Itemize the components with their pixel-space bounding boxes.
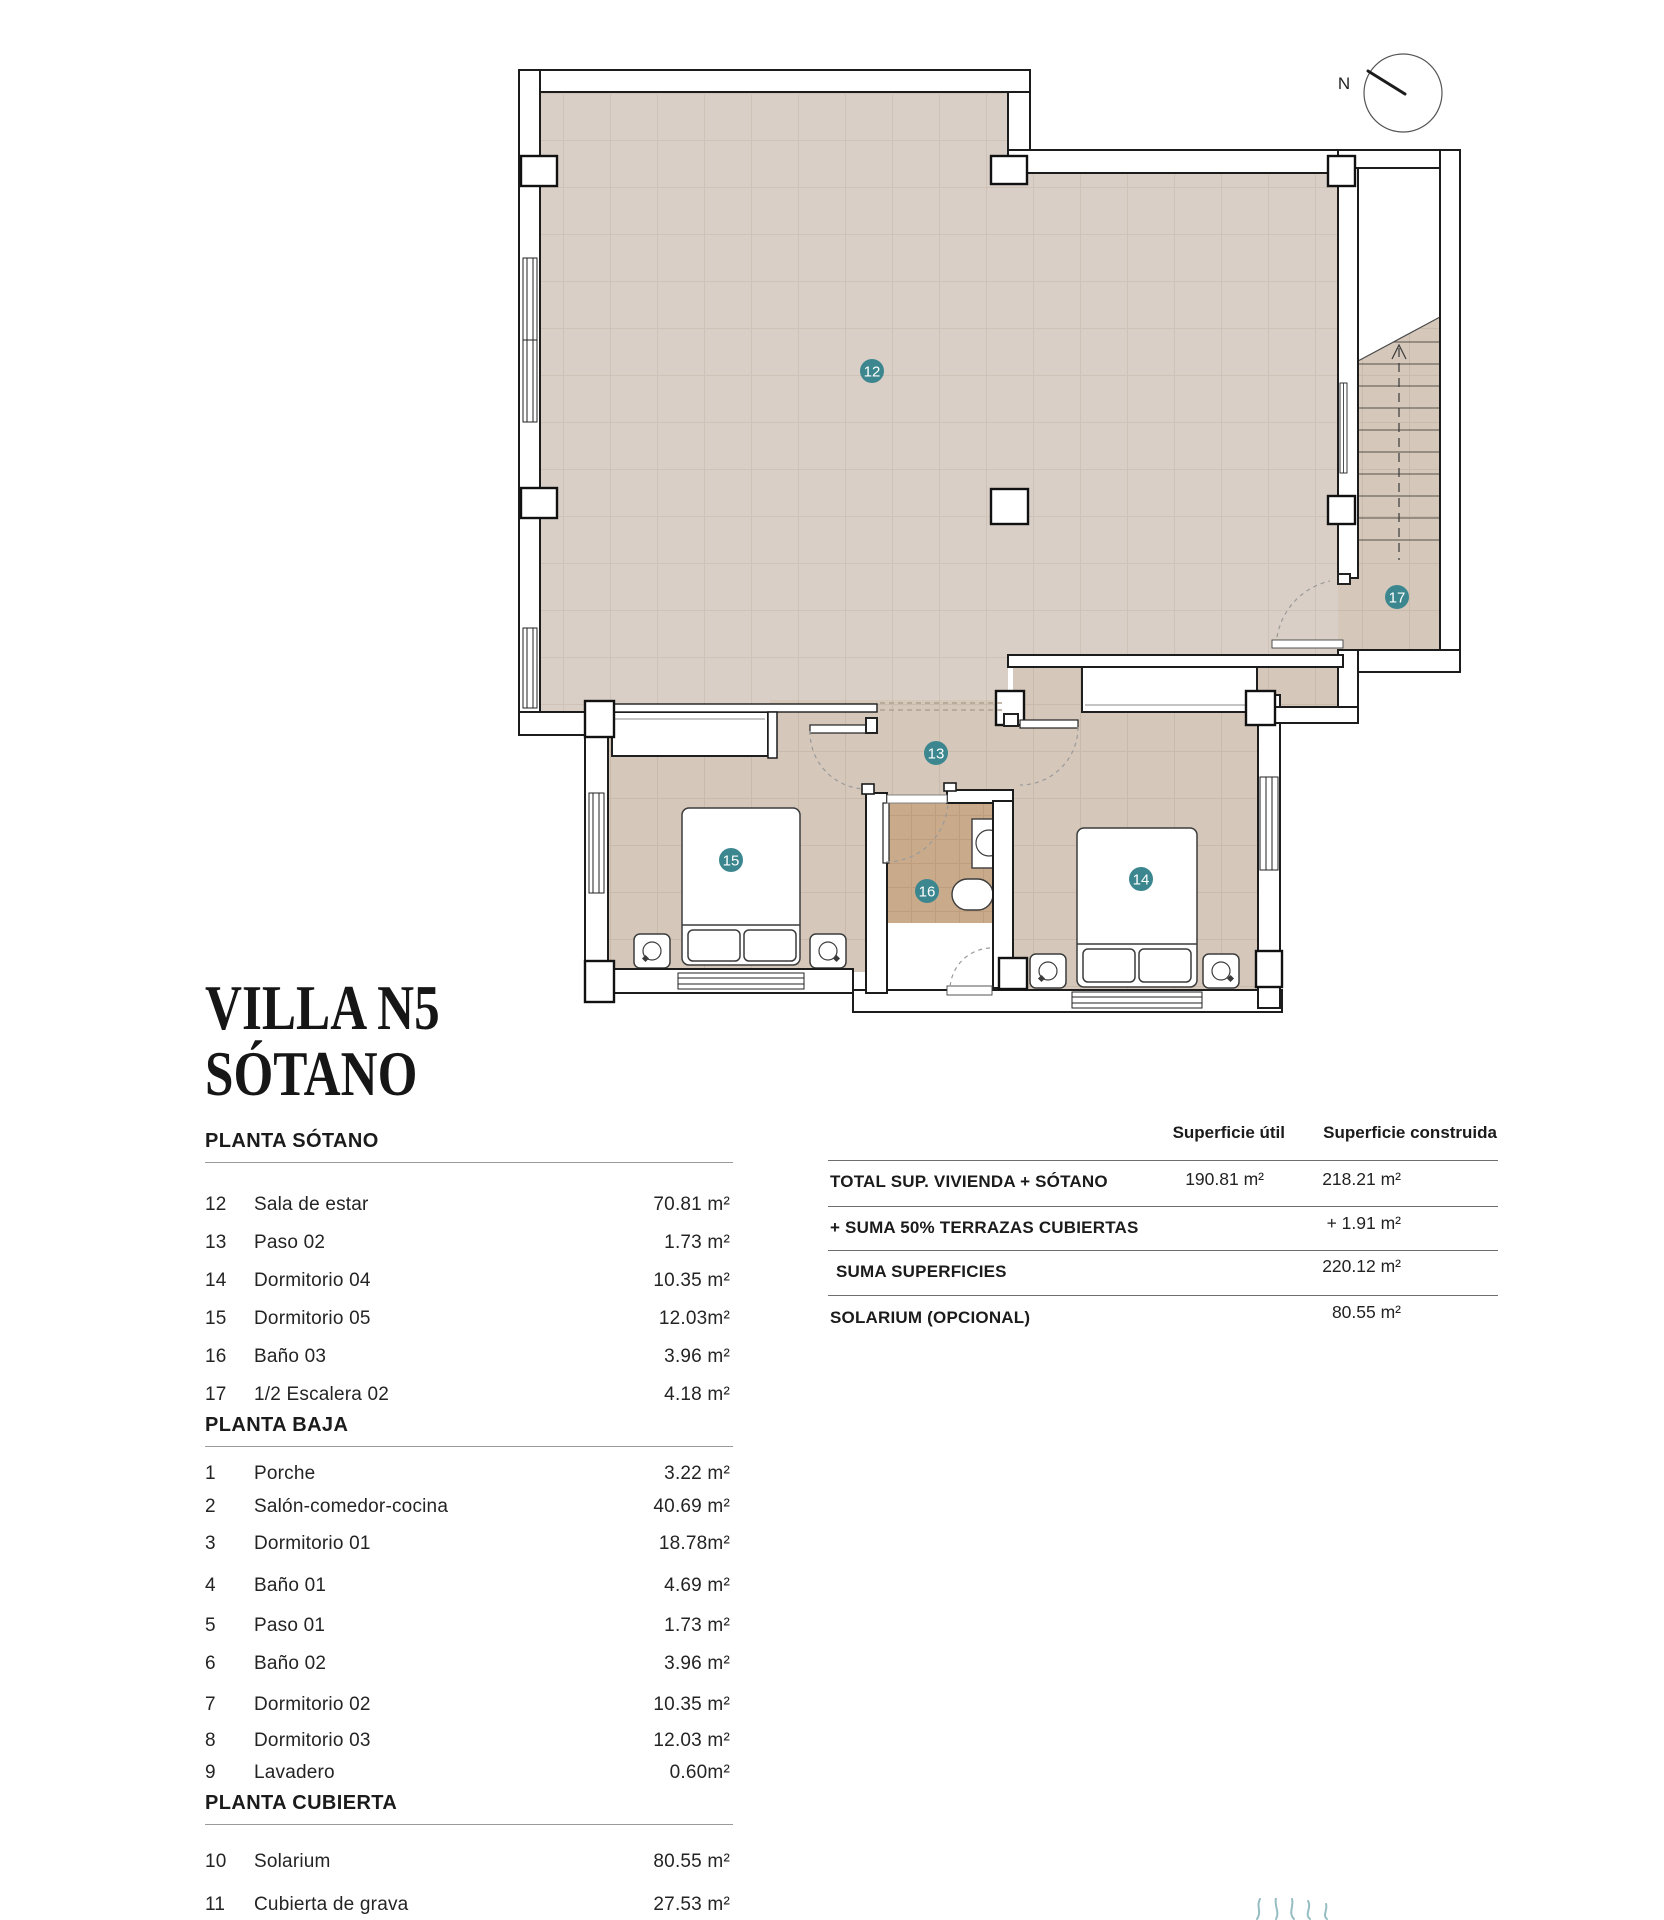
window-room15-bottom	[678, 973, 804, 989]
table-row: 11 Cubierta de grava 27.53 m²	[205, 1894, 730, 1916]
window-left-upper	[523, 258, 537, 422]
section-divider	[205, 1446, 733, 1447]
room-badge-15: 15	[719, 848, 743, 872]
compass-needle-icon	[1368, 71, 1405, 94]
table-row: 8 Dormitorio 03 12.03 m²	[205, 1730, 730, 1752]
svg-text:17: 17	[1389, 590, 1406, 607]
window-room15-left	[589, 793, 604, 893]
summary-row-label: SOLARIUM (OPCIONAL)	[830, 1307, 1250, 1329]
table-row: 17 1/2 Escalera 02 4.18 m²	[205, 1384, 730, 1406]
table-row: 1 Porche 3.22 m²	[205, 1463, 730, 1485]
table-row: 3 Dormitorio 01 18.78m²	[205, 1533, 730, 1555]
svg-text:15: 15	[723, 853, 740, 870]
window-room14-bottom	[1072, 992, 1202, 1008]
room-badge-13: 13	[924, 741, 948, 765]
stair-threshold	[1272, 640, 1343, 648]
table-row: 4 Baño 01 4.69 m²	[205, 1575, 730, 1597]
svg-text:14: 14	[1133, 872, 1150, 889]
summary-row-built: 220.12 m²	[1240, 1256, 1401, 1278]
entry-threshold	[947, 986, 992, 995]
page-title: VILLA N5 SÓTANO	[205, 975, 440, 1107]
section-divider	[205, 1162, 733, 1163]
table-row: 15 Dormitorio 05 12.03m²	[205, 1308, 730, 1330]
summary-row-built: 80.55 m²	[1240, 1302, 1401, 1324]
section-header-baja: PLANTA BAJA	[205, 1414, 733, 1437]
window-room14-right	[1260, 777, 1278, 870]
plan-sheet: { "title": {"line1": "VILLA N5", "line2"…	[0, 0, 1664, 1920]
room-badge-16: 16	[915, 879, 939, 903]
table-row: 7 Dormitorio 02 10.35 m²	[205, 1694, 730, 1716]
summary-row-built: + 1.91 m²	[1240, 1213, 1401, 1235]
summary-row-built: 218.21 m²	[1240, 1169, 1401, 1191]
section-header-sotano: PLANTA SÓTANO	[205, 1130, 733, 1153]
door-leaf-room14	[1020, 720, 1078, 728]
room-badge-12: 12	[860, 359, 884, 383]
summary-divider	[828, 1295, 1498, 1296]
summary-row-label: + SUMA 50% TERRAZAS CUBIERTAS	[830, 1217, 1250, 1239]
door-leaf-room15	[810, 725, 867, 733]
svg-text:13: 13	[928, 746, 945, 763]
window-stairwell	[1340, 383, 1347, 473]
bed-15	[682, 808, 800, 965]
bathroom-toilet	[952, 879, 993, 910]
room-badge-14: 14	[1129, 867, 1153, 891]
summary-divider	[828, 1250, 1498, 1251]
table-row: 9 Lavadero 0.60m²	[205, 1762, 730, 1784]
page-title-line2: SÓTANO	[205, 1041, 440, 1107]
table-row: 2 Salón-comedor-cocina 40.69 m²	[205, 1496, 730, 1518]
interior-pillar	[991, 489, 1028, 524]
section-divider	[205, 1824, 733, 1825]
table-row: 16 Baño 03 3.96 m²	[205, 1346, 730, 1368]
svg-text:16: 16	[919, 884, 936, 901]
summary-row-label: SUMA SUPERFICIES	[836, 1261, 1256, 1283]
page-title-line1: VILLA N5	[205, 975, 440, 1041]
svg-text:12: 12	[864, 364, 881, 381]
table-row: 14 Dormitorio 04 10.35 m²	[205, 1270, 730, 1292]
table-row: 13 Paso 02 1.73 m²	[205, 1232, 730, 1254]
table-row: 5 Paso 01 1.73 m²	[205, 1615, 730, 1637]
table-row: 10 Solarium 80.55 m²	[205, 1851, 730, 1873]
room-badge-17: 17	[1385, 585, 1409, 609]
north-label: N	[1338, 74, 1350, 93]
section-header-cubierta: PLANTA CUBIERTA	[205, 1792, 733, 1815]
door-leaf-bath	[883, 803, 889, 863]
summary-col-built: Superficie construida	[1230, 1123, 1497, 1145]
window-left-lower	[523, 628, 537, 708]
watermark-squiggle-icon	[1248, 1898, 1358, 1920]
summary-divider	[828, 1160, 1498, 1161]
table-row: 6 Baño 02 3.96 m²	[205, 1653, 730, 1675]
table-row: 12 Sala de estar 70.81 m²	[205, 1194, 730, 1216]
bed-14	[1077, 828, 1197, 987]
summary-divider	[828, 1206, 1498, 1207]
floor-plan: 12 13 14 15 16 17 N	[0, 0, 1664, 1080]
north-compass: N	[1338, 54, 1442, 132]
